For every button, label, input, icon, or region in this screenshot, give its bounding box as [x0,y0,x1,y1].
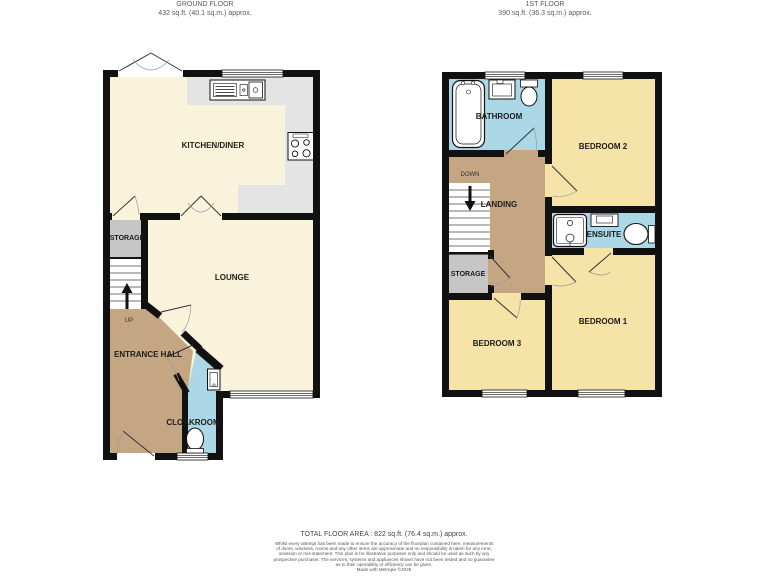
label-down: DOWN [461,172,480,178]
sink-ensuite-icon [591,214,618,227]
window-bedroom3 [482,390,527,397]
label-landing: LANDING [481,200,517,209]
label-bathroom: BATHROOM [476,112,523,121]
first-floor-plan: BATHROOM BEDROOM 2 LANDING DOWN ENSUITE … [442,72,662,397]
wall-storage-stairs [110,257,141,259]
wall-stairs-storage [449,252,488,255]
window-bathroom [485,72,525,79]
floorplan-drawing: KITCHEN/DINER LOUNGE STORAGE ENTRANCE HA… [0,0,768,576]
label-entrance-hall: ENTRANCE HALL [114,350,182,359]
toilet-ensuite-icon [624,224,655,245]
label-bedroom1: BEDROOM 1 [579,317,628,326]
window-bedroom1 [578,390,625,397]
label-lounge: LOUNGE [215,273,250,282]
label-ensuite: ENSUITE [587,230,622,239]
metropix-credit: Made with Metropix ©2025 [0,567,768,572]
wall-bedroom2-ensuite [545,206,655,213]
label-cloakroom: CLOAKROOM [166,418,220,427]
label-storage-first: STORAGE [451,271,486,278]
window-cloakroom [177,453,208,460]
label-bedroom3: BEDROOM 3 [473,339,522,348]
window-bedroom2 [583,72,623,79]
label-kitchen-diner: KITCHEN/DINER [182,141,245,150]
shower-icon [554,215,587,247]
total-floor-area: TOTAL FLOOR AREA : 822 sq.ft. (76.4 sq.m… [0,531,768,538]
label-bedroom2: BEDROOM 2 [579,142,628,151]
label-storage-ground: STORAGE [110,235,145,242]
floorplan-page: GROUND FLOOR 432 sq.ft. (40.1 sq.m.) app… [0,0,768,576]
wall-stairs-lounge [141,213,148,309]
sink-cloakroom-icon [208,369,221,390]
french-doors-kitchen [118,53,183,77]
hob-icon [288,133,314,161]
kitchen-sink-icon [210,80,265,100]
toilet-cloakroom-icon [187,428,204,453]
sink-bathroom-icon [489,80,515,99]
toilet-bathroom-icon [521,80,538,106]
label-up: UP [125,318,133,324]
wall-center-vertical [545,79,552,390]
window-lounge-bottom [230,391,313,398]
window-kitchen-top [222,70,283,77]
ground-floor-plan: KITCHEN/DINER LOUNGE STORAGE ENTRANCE HA… [103,53,320,460]
disclaimer: Whilst every attempt has been made to en… [0,541,768,572]
